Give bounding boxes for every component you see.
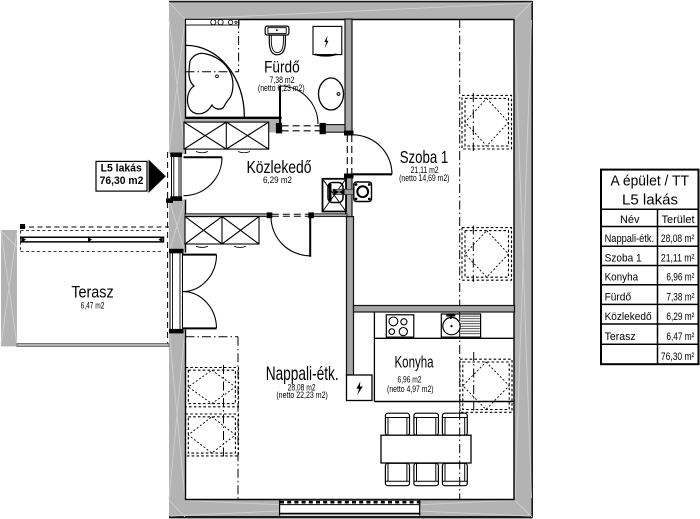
svg-text:6,29 m²: 6,29 m²: [666, 311, 694, 323]
svg-text:(netto 4,97 m2): (netto 4,97 m2): [387, 384, 434, 394]
svg-text:Fürdő: Fürdő: [264, 58, 300, 76]
svg-text:6,96 m2: 6,96 m2: [398, 374, 422, 384]
svg-text:Fürdő: Fürdő: [605, 291, 632, 303]
svg-text:76,30 m²: 76,30 m²: [661, 351, 695, 363]
svg-text:(netto 6,23 m2): (netto 6,23 m2): [258, 83, 305, 93]
svg-text:6,47 m2: 6,47 m2: [81, 300, 105, 310]
svg-text:A épület / TT: A épület / TT: [611, 173, 690, 189]
svg-text:Terasz: Terasz: [605, 331, 636, 343]
svg-text:7,38 m²: 7,38 m²: [666, 291, 694, 303]
svg-text:21,11 m²: 21,11 m²: [661, 252, 695, 264]
svg-text:Közlekedő: Közlekedő: [605, 311, 652, 323]
svg-text:28,08 m²: 28,08 m²: [661, 233, 695, 245]
svg-text:L5 lakás: L5 lakás: [101, 163, 142, 175]
svg-text:Közlekedő: Közlekedő: [247, 157, 312, 177]
svg-text:Név: Név: [620, 214, 640, 226]
svg-text:76,30 m2: 76,30 m2: [100, 175, 144, 187]
svg-text:6,47 m²: 6,47 m²: [666, 331, 694, 343]
svg-text:6,29 m2: 6,29 m2: [263, 175, 292, 185]
svg-text:6,96 m²: 6,96 m²: [666, 272, 694, 284]
svg-text:L5 lakás: L5 lakás: [622, 192, 678, 208]
svg-text:(netto 14,69 m2): (netto 14,69 m2): [399, 173, 449, 183]
svg-text:Konyha: Konyha: [395, 354, 435, 372]
svg-text:Terület: Terület: [662, 214, 696, 226]
svg-text:Szoba 1: Szoba 1: [400, 147, 449, 167]
svg-text:(netto 22,23 m2): (netto 22,23 m2): [276, 390, 328, 400]
svg-text:Konyha: Konyha: [605, 272, 639, 284]
svg-text:Szoba 1: Szoba 1: [605, 252, 642, 264]
svg-text:Terasz: Terasz: [71, 284, 113, 302]
svg-text:Nappali-étk.: Nappali-étk.: [605, 233, 655, 245]
